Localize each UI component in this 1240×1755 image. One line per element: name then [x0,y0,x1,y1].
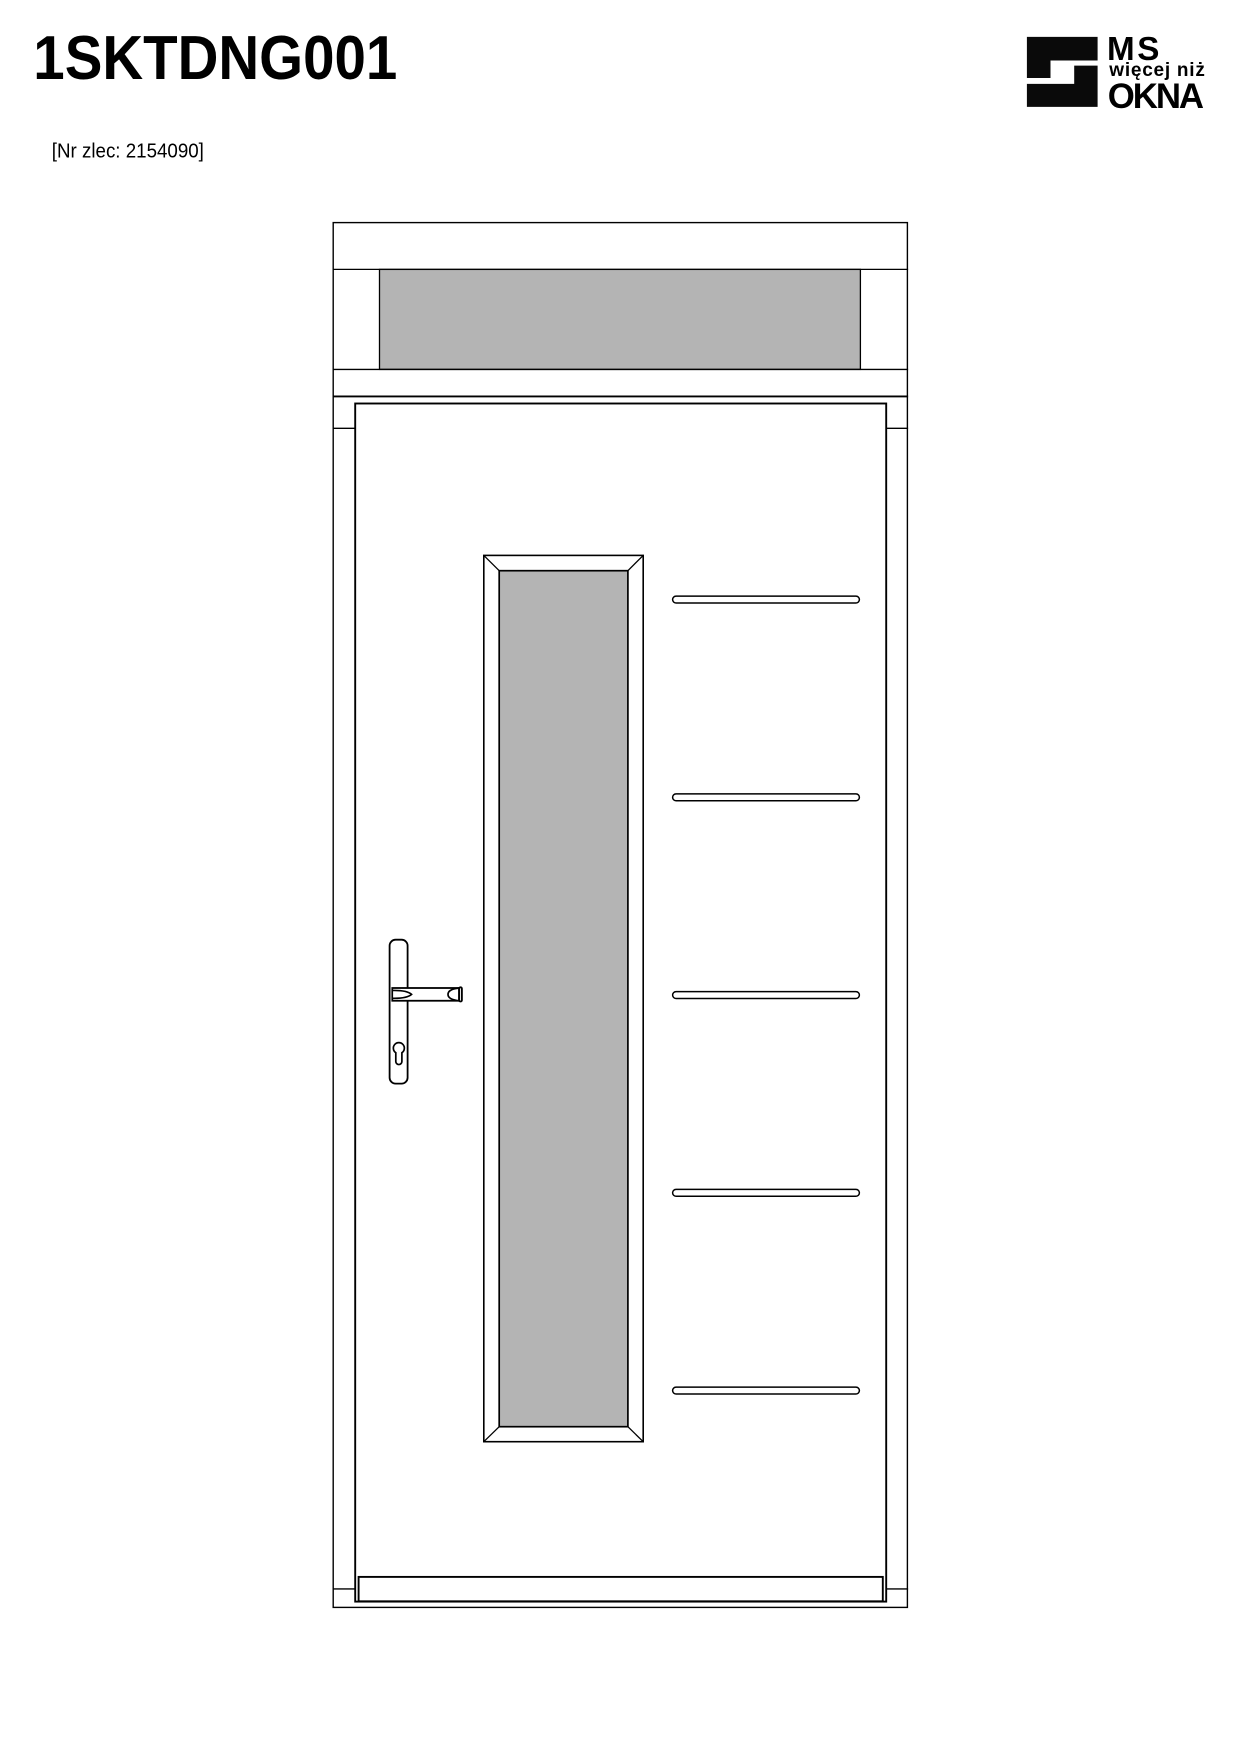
svg-text:[Nr zlec: 2154090]: [Nr zlec: 2154090] [52,141,204,163]
svg-text:1SKTDNG001: 1SKTDNG001 [33,24,397,93]
svg-text:OKNA: OKNA [1108,77,1204,116]
